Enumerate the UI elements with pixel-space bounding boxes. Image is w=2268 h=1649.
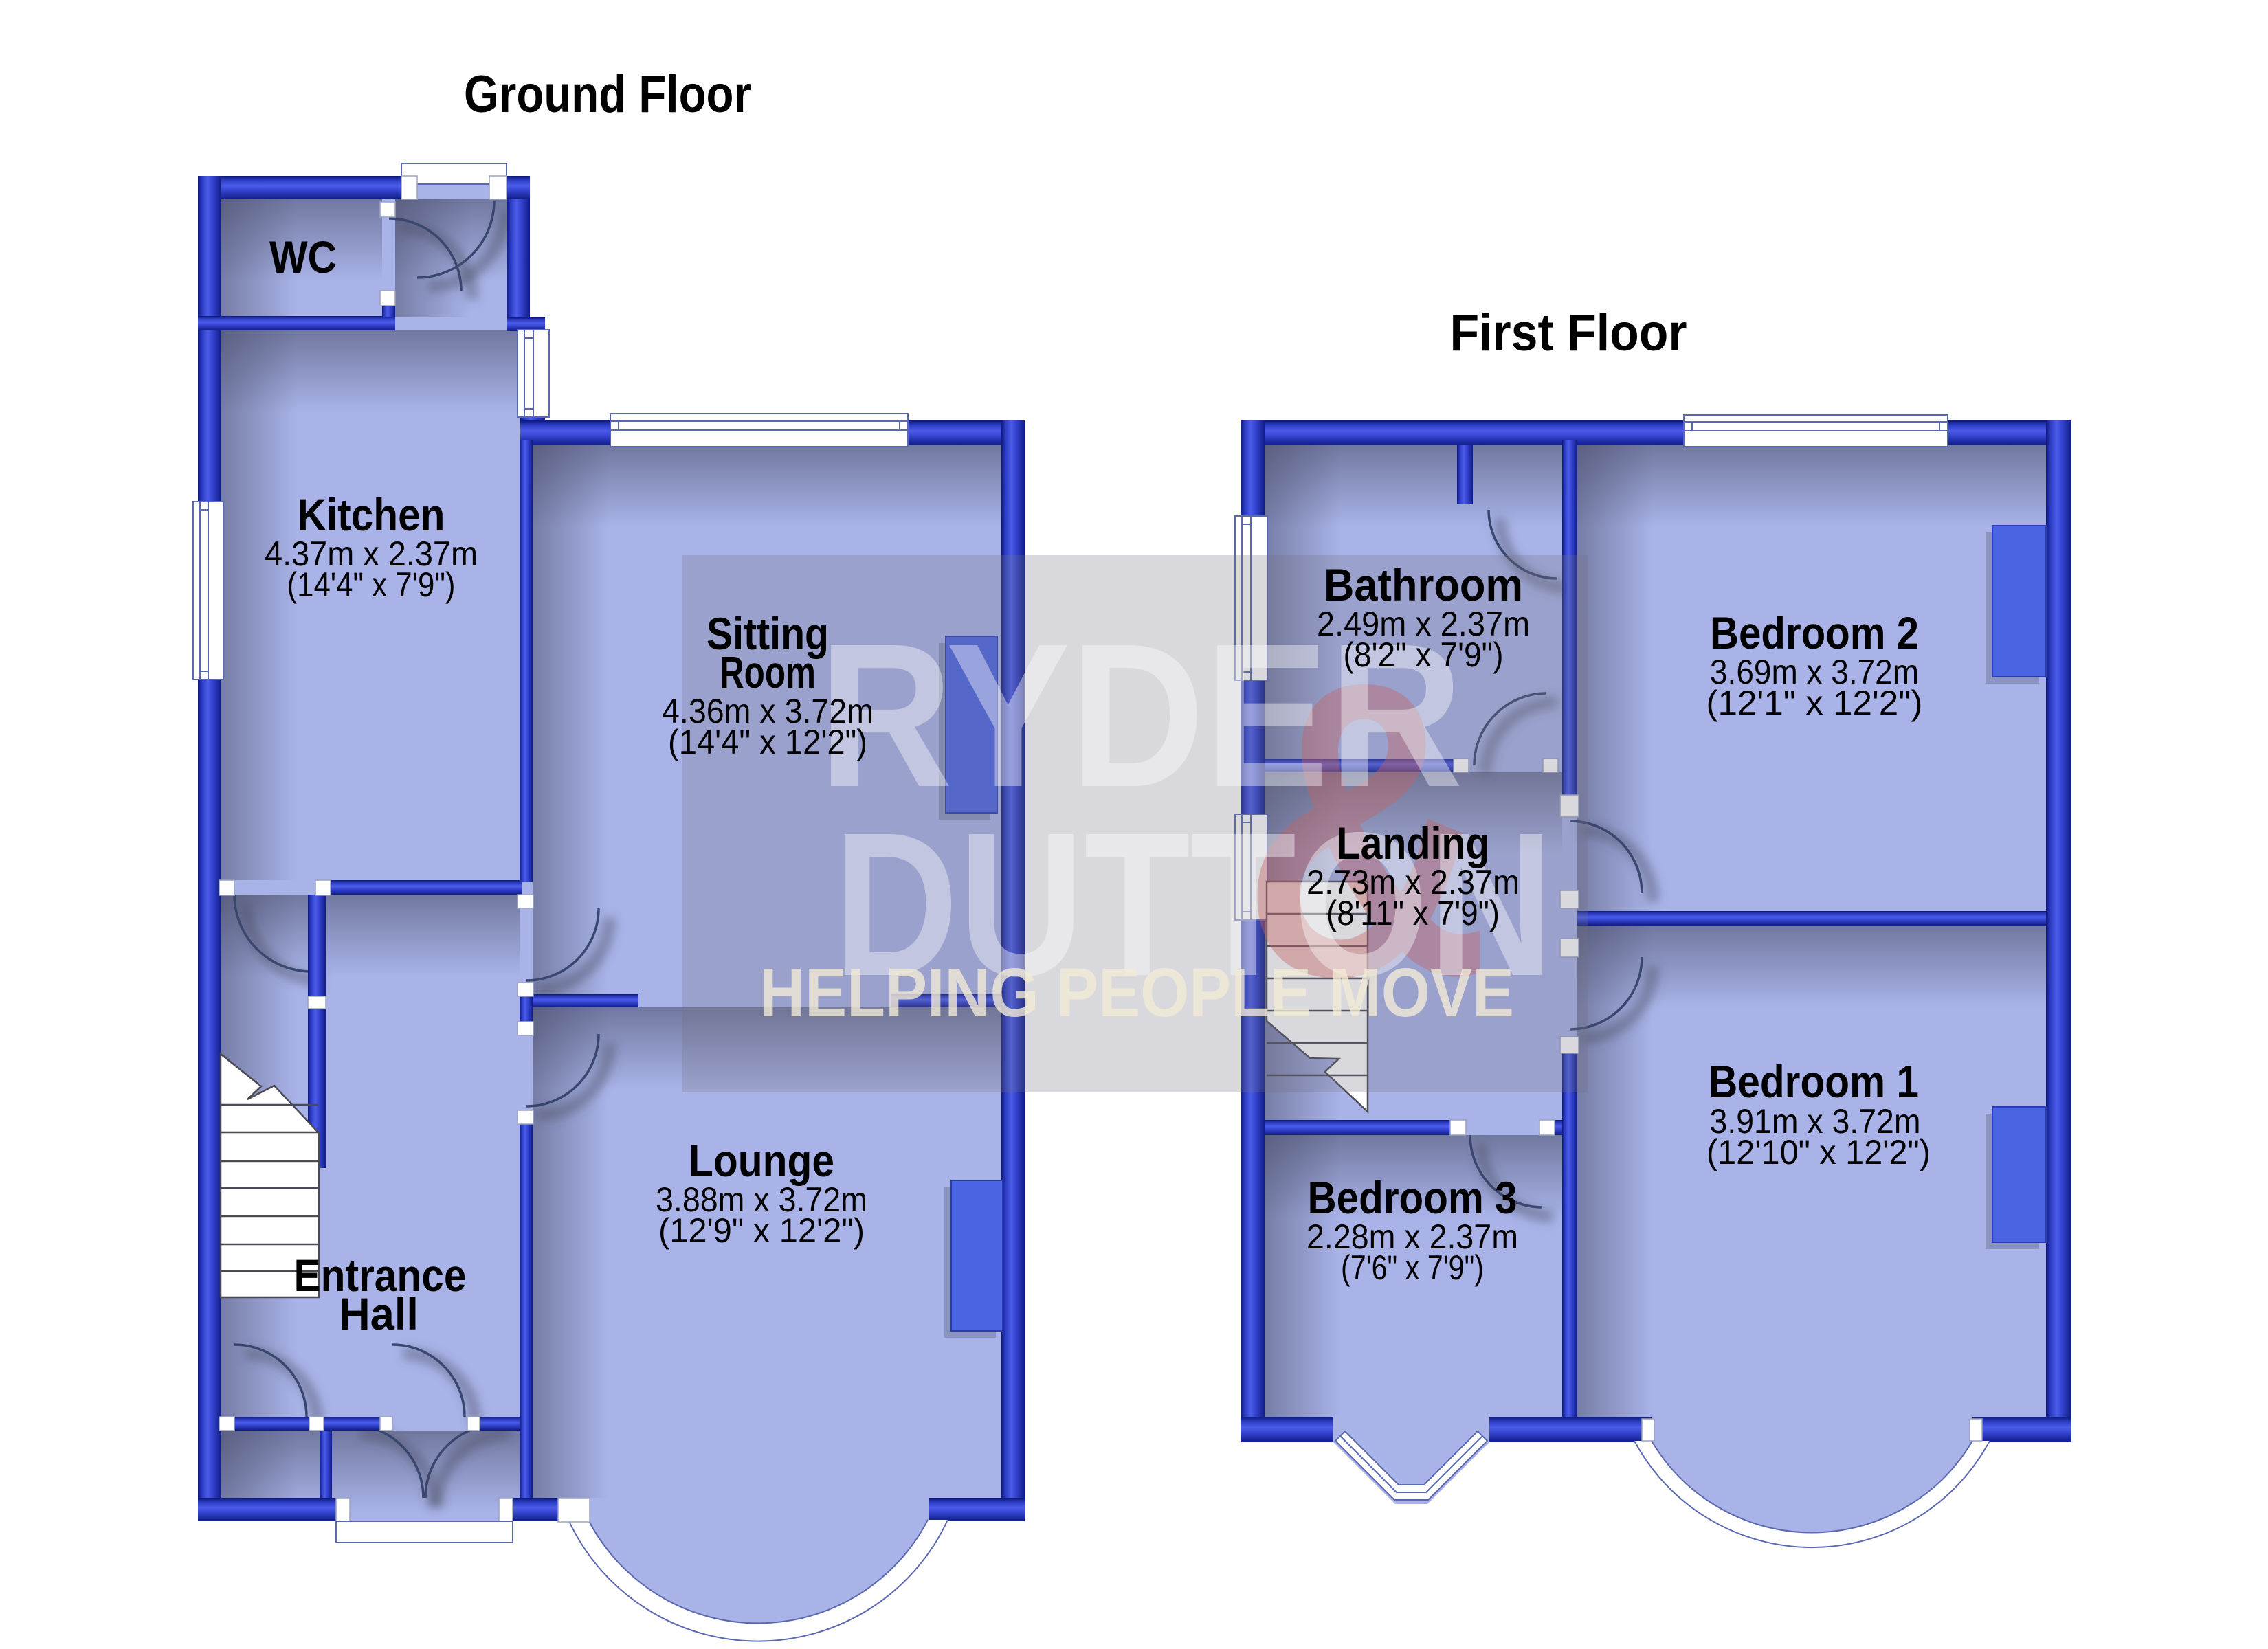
svg-text:Bathroom: Bathroom xyxy=(1324,559,1523,610)
svg-text:First Floor: First Floor xyxy=(1450,304,1687,362)
svg-text:(14'4" x 12'2"): (14'4" x 12'2") xyxy=(668,723,867,761)
svg-text:Kitchen: Kitchen xyxy=(298,489,445,540)
svg-text:WC: WC xyxy=(269,232,337,282)
svg-text:Ground Floor: Ground Floor xyxy=(464,65,751,124)
svg-text:(14'4" x 7'9"): (14'4" x 7'9") xyxy=(287,565,456,604)
svg-text:(12'1" x 12'2"): (12'1" x 12'2") xyxy=(1706,684,1923,722)
svg-text:Bedroom 1: Bedroom 1 xyxy=(1709,1056,1919,1107)
svg-text:Bedroom 3: Bedroom 3 xyxy=(1308,1172,1517,1223)
svg-text:(12'9" x 12'2"): (12'9" x 12'2") xyxy=(658,1211,865,1250)
svg-text:(8'2" x 7'9"): (8'2" x 7'9") xyxy=(1344,636,1504,674)
svg-text:Room: Room xyxy=(720,647,816,697)
svg-text:(8'11" x 7'9"): (8'11" x 7'9") xyxy=(1326,894,1500,932)
svg-text:(7'6" x 7'9"): (7'6" x 7'9") xyxy=(1341,1248,1484,1287)
svg-text:Hall: Hall xyxy=(339,1288,419,1339)
svg-text:HELPING PEOPLE MOVE: HELPING PEOPLE MOVE xyxy=(759,954,1514,1031)
svg-text:(12'10" x 12'2"): (12'10" x 12'2") xyxy=(1706,1133,1931,1171)
svg-text:Lounge: Lounge xyxy=(689,1135,834,1186)
svg-text:Bedroom 2: Bedroom 2 xyxy=(1710,607,1919,658)
svg-text:Landing: Landing xyxy=(1337,818,1490,868)
